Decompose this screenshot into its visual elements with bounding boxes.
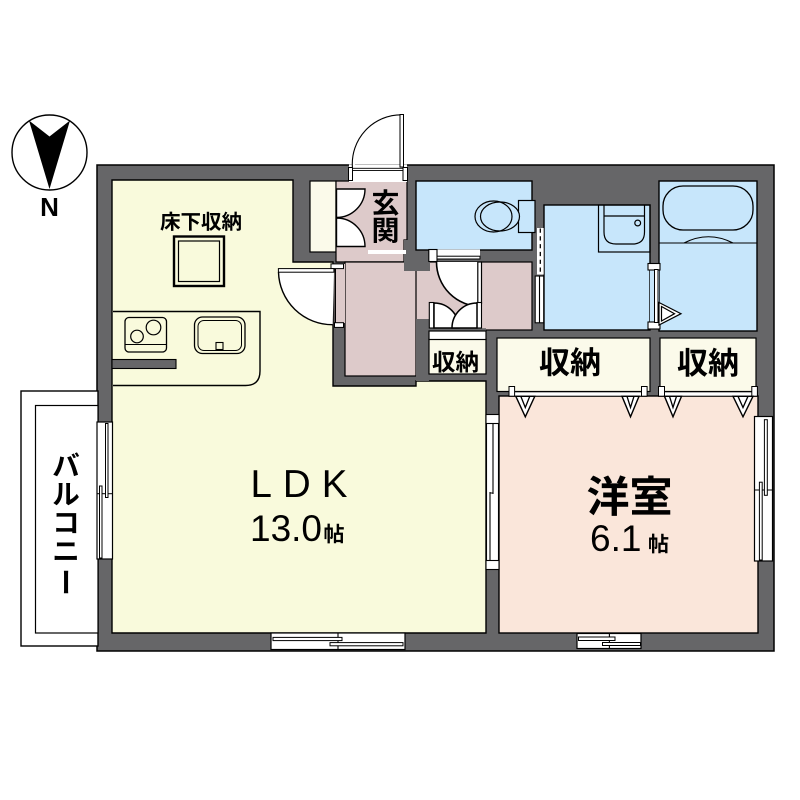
svg-text:13.0: 13.0 xyxy=(250,508,322,549)
svg-text:6.1: 6.1 xyxy=(590,518,641,559)
svg-text:LDK: LDK xyxy=(251,463,359,506)
svg-text:N: N xyxy=(40,192,59,222)
